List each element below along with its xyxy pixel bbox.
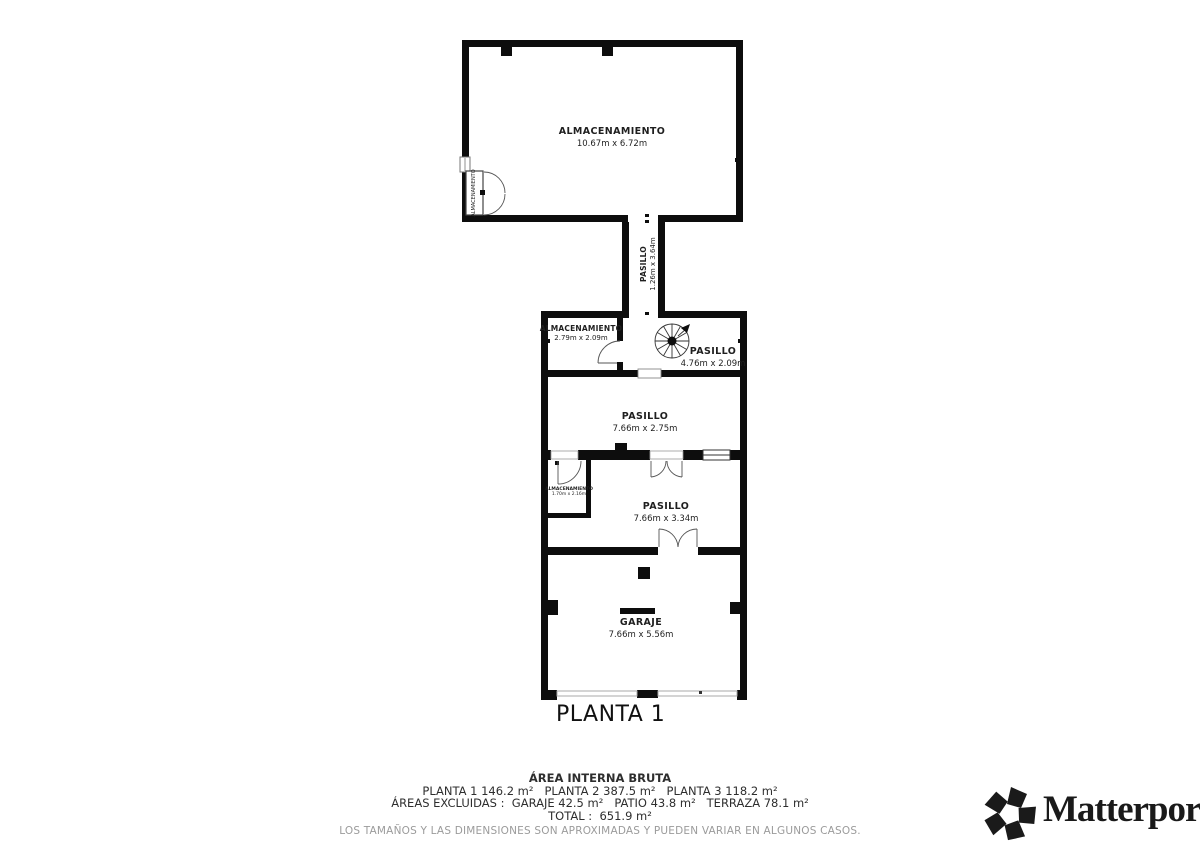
room-label-hall-stairs: PASILLO 4.76m x 2.09m xyxy=(681,346,746,369)
door-storage-mid xyxy=(598,341,620,363)
room-name: PASILLO xyxy=(639,237,648,290)
room-label-garage: GARAJE 7.66m x 5.56m xyxy=(609,617,674,640)
room-dims: 10.67m x 6.72m xyxy=(559,138,666,148)
room-dims: 7.66m x 2.75m xyxy=(613,423,678,433)
floorplan-page: ALMACENAMIENTO 10.67m x 6.72m ALMACENAMI… xyxy=(0,0,1200,849)
walls-hall-garage-divider xyxy=(541,547,747,555)
window-top-left xyxy=(460,157,470,172)
matterport-wordmark: Matterport® xyxy=(1043,788,1200,831)
room-dims: 4.76m x 2.09m xyxy=(681,358,746,368)
room-label-storage-mid: ALMACENAMIENTO 2.79m x 2.09m xyxy=(540,324,623,342)
room-dims: 1.26m x 3.64m xyxy=(649,237,657,290)
window-hall xyxy=(703,450,730,460)
doorway-threshold-middle xyxy=(638,369,661,378)
room-name: GARAJE xyxy=(609,617,674,628)
room-dims: 1.70m x 2.16m xyxy=(545,492,593,497)
floor-title: PLANTA 1 xyxy=(556,702,665,727)
matterport-logo: Matterport® xyxy=(983,786,1195,844)
room-label-storage-top: ALMACENAMIENTO 10.67m x 6.72m xyxy=(559,126,666,149)
room-label-hall-lower: PASILLO 7.66m x 3.34m xyxy=(634,501,699,524)
double-door-upper xyxy=(651,461,682,477)
opening-left xyxy=(551,451,578,459)
summary-title: ÁREA INTERNA BRUTA xyxy=(0,772,1200,785)
room-dims: 7.66m x 5.56m xyxy=(609,629,674,639)
door-small-storage xyxy=(558,461,581,484)
room-name: ALMACENAMIENTO xyxy=(540,324,623,333)
room-name: PASILLO xyxy=(681,346,746,357)
double-door-lower xyxy=(659,529,697,547)
room-name: PASILLO xyxy=(634,501,699,512)
room-label-storage-small: ALMACENAMIENTO 1.70m x 2.16m xyxy=(545,487,593,497)
garage-door-right xyxy=(658,691,737,696)
room-label-corridor: PASILLO 1.26m x 3.64m xyxy=(639,237,657,290)
brand-name: Matterport xyxy=(1043,789,1200,830)
opening-center xyxy=(650,451,683,459)
room-dims: 2.79m x 2.09m xyxy=(540,334,623,342)
room-name: PASILLO xyxy=(613,411,678,422)
room-label-closet-top: ALMACENAMIENTO xyxy=(471,169,477,216)
room-dims: 7.66m x 3.34m xyxy=(634,513,699,523)
room-label-hall-upper: PASILLO 7.66m x 2.75m xyxy=(613,411,678,434)
room-name: ALMACENAMIENTO xyxy=(559,126,666,137)
room-name: ALMACENAMIENTO xyxy=(471,169,477,216)
garage-door-left xyxy=(557,691,637,696)
